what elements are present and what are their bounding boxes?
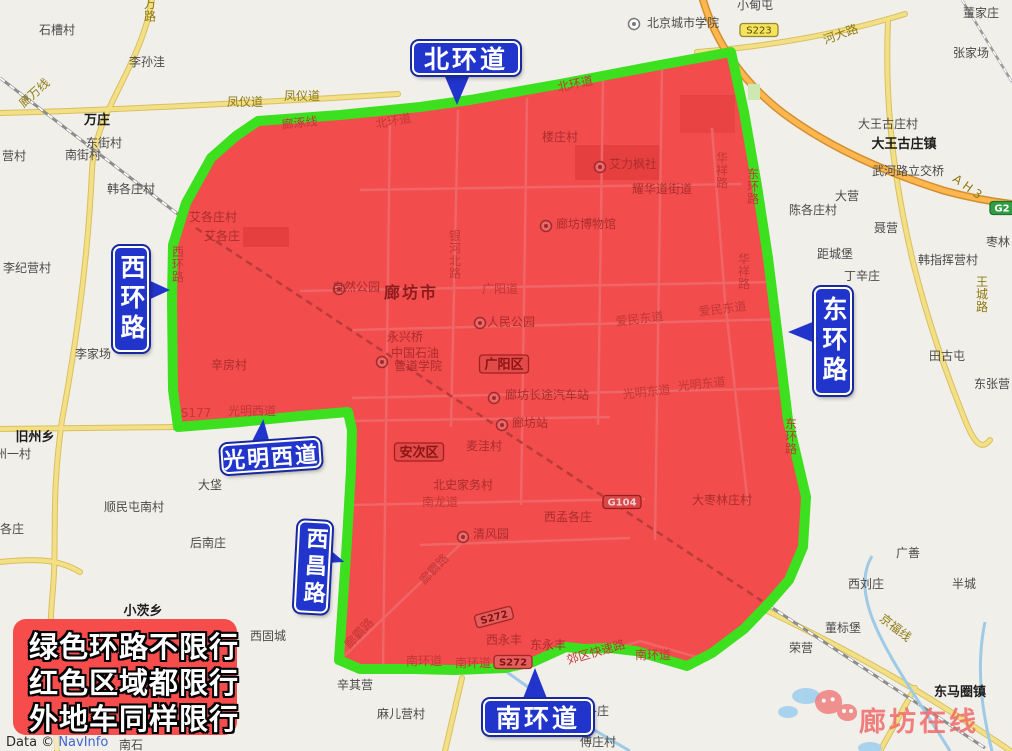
west-ring-sign: 西环路 [113, 246, 149, 352]
map-label: 李纪营村 [3, 260, 51, 275]
map-label: 董家庄 [963, 5, 999, 20]
map-label: 距城堡 [817, 246, 853, 261]
road-badge: G2 [990, 202, 1012, 215]
map-label: 廊坊博物馆 [556, 216, 616, 231]
map-label: 西孟各庄 [544, 509, 592, 524]
west-ring-sign-arrow [146, 279, 170, 301]
map-label: 田古屯 [929, 348, 965, 363]
bus-station-icon [489, 393, 500, 404]
watermark: 廊坊在线 [815, 686, 1005, 738]
map-label: 中国石油 [391, 345, 439, 360]
svg-text:S272: S272 [499, 658, 527, 669]
map-label: 广阳道 [482, 282, 518, 296]
map-label: 人民公园 [487, 315, 535, 329]
road-badge: S223 [740, 24, 778, 37]
map-label: 清风园 [473, 527, 509, 541]
map-label: 董标堡 [825, 620, 861, 635]
map-label: 西刘庄 [848, 576, 884, 591]
map-label: 广善 [896, 545, 920, 560]
map-attribution: Data © NavInfo [3, 735, 111, 750]
map-label: 大王古庄镇 [871, 136, 936, 152]
map-label: 大王古庄村 [858, 116, 918, 131]
map-label: 南环道 [635, 647, 671, 662]
map-label: 小茨乡 [123, 603, 162, 619]
map-label: 南街村 [65, 147, 101, 162]
map-label: 各庄 [0, 521, 24, 536]
navinfo-link[interactable]: NavInfo [58, 735, 108, 750]
svg-text:G2: G2 [994, 204, 1009, 215]
map-label: 永兴桥 [387, 330, 423, 344]
train-station-icon [497, 420, 508, 431]
map-label: 大枣林庄村 [692, 492, 752, 507]
map-label: 武河路立交桥 [872, 163, 944, 178]
notice-line-3: 外地车同样限行 [29, 701, 237, 737]
south-ring-sign-arrow [522, 668, 548, 701]
watermark-text: 廊坊在线 [859, 700, 979, 739]
park-green [748, 84, 760, 100]
map-label: 东永丰 [530, 638, 566, 652]
map-label: S177 [181, 406, 212, 420]
svg-text:G104: G104 [607, 498, 636, 509]
notice-line-1: 绿色环路不限行 [29, 629, 237, 665]
map-label: 麻儿营村 [377, 706, 425, 721]
map-label: 辛其营 [337, 678, 373, 692]
map-label: 艾力枫社 [609, 156, 657, 171]
svg-text:安次区: 安次区 [399, 445, 438, 461]
map-label: 华祥路 [716, 151, 728, 190]
map-label: 东张营 [974, 377, 1010, 391]
restriction-notice-box: 绿色环路不限行 红色区域都限行 外地车同样限行 [13, 619, 237, 735]
svg-text:广阳区: 广阳区 [484, 357, 523, 373]
map-label: 韩指挥营村 [918, 252, 978, 267]
map-label: 光明西道 [228, 404, 276, 418]
school-icon [377, 357, 388, 368]
map-label: 州一村 [0, 447, 31, 461]
attribution-prefix: Data © [6, 735, 58, 750]
map-label: 丁辛庄 [844, 268, 880, 283]
map-label: 营村 [2, 149, 26, 163]
map-label: 管道学院 [394, 358, 442, 373]
map-label: 麦洼村 [466, 439, 502, 453]
road-badge: G104 [603, 496, 641, 509]
park-icon [458, 532, 469, 543]
map-label: 凤仪道 [284, 89, 320, 103]
map-label: 南环道 [455, 655, 491, 670]
map-label: 万庄 [83, 112, 110, 128]
attraction-icon [595, 162, 606, 173]
guangming-west-sign: 光明西道 [220, 438, 322, 475]
map-label: 张家场 [953, 45, 989, 60]
school-icon [629, 19, 640, 30]
map-label: 南环道 [406, 653, 442, 668]
map-label: 东环路 [747, 167, 759, 206]
map-label: 廊坊站 [512, 415, 548, 430]
map-label: 廊坊长途汽车站 [505, 387, 589, 402]
map-label: 聂营 [874, 221, 898, 235]
map-label: 南龙道 [422, 494, 458, 509]
map-label: 北史家务村 [433, 477, 493, 492]
map-label: 顺民屯南村 [104, 499, 164, 514]
map-label: 韩各庄村 [107, 181, 155, 196]
xichang-road-sign: 西昌路 [294, 520, 333, 614]
map-label: 枣林 [986, 235, 1010, 249]
north-ring-sign-arrow [443, 72, 471, 105]
road-badge: 广阳区 [480, 355, 529, 373]
map-label: 西固城 [250, 629, 286, 643]
map-label: 李孙洼 [129, 54, 165, 69]
map-label: 旧州乡 [15, 429, 54, 445]
map-label: 荣营 [789, 641, 813, 655]
map-label: 傅庄村 [580, 734, 616, 749]
map-label: 凤仪道 [227, 95, 263, 109]
map-label: 西永丰 [486, 633, 522, 647]
map-label: 华祥路 [738, 252, 750, 291]
map-label: 廊坊市 [384, 283, 438, 302]
road-badge: 安次区 [395, 443, 444, 461]
map-label: 北京城市学院 [647, 15, 719, 30]
map-label: 艾各庄村 [189, 209, 237, 224]
map-label: 万路 [144, 0, 156, 23]
map-label: 半城 [952, 577, 976, 591]
road-badge: S272 [494, 656, 532, 669]
north-ring-sign: 北环道 [412, 41, 520, 75]
svg-text:S223: S223 [746, 26, 771, 37]
east-ring-sign: 东环路 [814, 287, 852, 395]
park-icon [475, 318, 486, 329]
map-screenshot: 石槽村李孙洼万庄东街村南街村韩各庄村营村李纪营村李家场旧州乡州一村各庄大垡顺民屯… [0, 0, 1012, 751]
map-label: 王城路 [976, 275, 988, 314]
east-ring-sign-arrow [788, 321, 815, 343]
map-label: 石槽村 [39, 23, 75, 37]
map-label: 南石 [119, 737, 143, 751]
map-label: 楼庄村 [542, 129, 578, 144]
map-label: 东环路 [785, 417, 797, 456]
map-label: 小甸屯 [737, 0, 773, 12]
map-label: 大垡 [198, 477, 222, 492]
south-ring-sign: 南环道 [483, 699, 593, 735]
wechat-bubble-small-icon [837, 704, 857, 721]
map-label: 大营 [835, 189, 859, 203]
map-label: 耀华道街道 [632, 182, 692, 196]
map-label: 辛房村 [211, 357, 247, 372]
notice-line-2: 红色区域都限行 [29, 665, 237, 701]
map-label: 自然公园 [332, 279, 380, 294]
map-label: 艾各庄 [204, 228, 240, 243]
map-label: 陈各庄村 [789, 202, 837, 217]
map-label: 银河北路 [449, 229, 461, 280]
museum-icon [541, 221, 552, 232]
map-label: 后南庄 [190, 535, 226, 550]
map-label: 李家场 [75, 346, 111, 361]
map-label: 西环路 [172, 245, 184, 284]
